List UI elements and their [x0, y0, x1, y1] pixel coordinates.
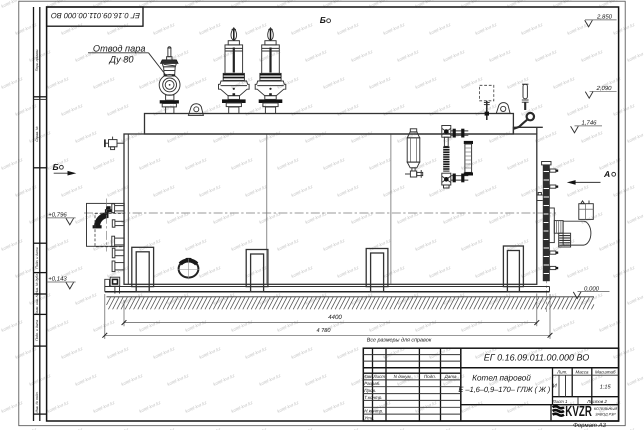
svg-text:Инв. № подл.: Инв. № подл.: [35, 391, 39, 412]
svg-text:Все размеры для справок: Все размеры для справок: [367, 338, 432, 344]
svg-text:ЕГ 0.16.09.011.00.000 ВО: ЕГ 0.16.09.011.00.000 ВО: [484, 352, 590, 362]
svg-text:Е –1,6–0,9–170– ГЛЖ ( Ж ): Е –1,6–0,9–170– ГЛЖ ( Ж ): [458, 385, 550, 394]
svg-text:Ду 80: Ду 80: [109, 55, 135, 65]
svg-text:ЕГ 0.16.09.011.00.000 ВО: ЕГ 0.16.09.011.00.000 ВО: [51, 11, 140, 20]
svg-text:4 780: 4 780: [317, 328, 332, 334]
svg-text:Лист 1: Лист 1: [552, 399, 569, 404]
svg-text:Подп.: Подп.: [424, 374, 436, 379]
svg-text:+0,796: +0,796: [48, 211, 67, 218]
svg-text:Подп. и дата: Подп. и дата: [35, 320, 39, 341]
svg-text:Листов 2: Листов 2: [586, 399, 607, 404]
svg-text:Масса: Масса: [576, 370, 590, 375]
svg-text:Лит.: Лит.: [556, 370, 567, 375]
svg-text:А: А: [603, 169, 610, 179]
svg-text:Формат А3: Формат А3: [573, 422, 606, 429]
svg-text:Утв.: Утв.: [364, 415, 374, 420]
svg-text:Разраб.: Разраб.: [364, 381, 380, 386]
svg-text:KVZR: KVZR: [565, 404, 592, 420]
svg-text:Отвод пара: Отвод пара: [93, 43, 146, 53]
svg-text:Б: Б: [320, 15, 326, 25]
svg-text:Подп. и дата: Подп. и дата: [35, 247, 39, 268]
svg-text:1:15: 1:15: [600, 385, 612, 391]
svg-text:Инв. № дубл.: Инв. № дубл.: [35, 273, 39, 294]
svg-text:4400: 4400: [328, 314, 342, 321]
svg-text:Взам. инв. №: Взам. инв. №: [35, 293, 39, 314]
svg-text:Перв. примен.: Перв. примен.: [35, 49, 39, 72]
svg-text:Т.контр.: Т.контр.: [364, 395, 382, 400]
svg-text:+0,143: +0,143: [48, 276, 67, 283]
svg-text:Котел паровой: Котел паровой: [472, 373, 531, 382]
svg-text:N докум.: N докум.: [394, 374, 412, 379]
svg-text:И: И: [553, 383, 557, 389]
svg-text:Справ. №: Справ. №: [35, 126, 39, 142]
svg-text:Пров.: Пров.: [364, 388, 376, 393]
svg-text:Н.контр.: Н.контр.: [364, 409, 383, 414]
svg-text:Б: Б: [53, 162, 59, 172]
svg-text:Дата: Дата: [444, 374, 457, 379]
svg-text:Лист: Лист: [372, 374, 385, 379]
svg-text:Изм.: Изм.: [363, 374, 373, 379]
svg-text:Масштаб: Масштаб: [595, 370, 616, 375]
svg-text:ЗАВОД РЗР: ЗАВОД РЗР: [595, 412, 616, 416]
svg-text:КОТЕЛЬНЫЙ: КОТЕЛЬНЫЙ: [594, 406, 618, 411]
